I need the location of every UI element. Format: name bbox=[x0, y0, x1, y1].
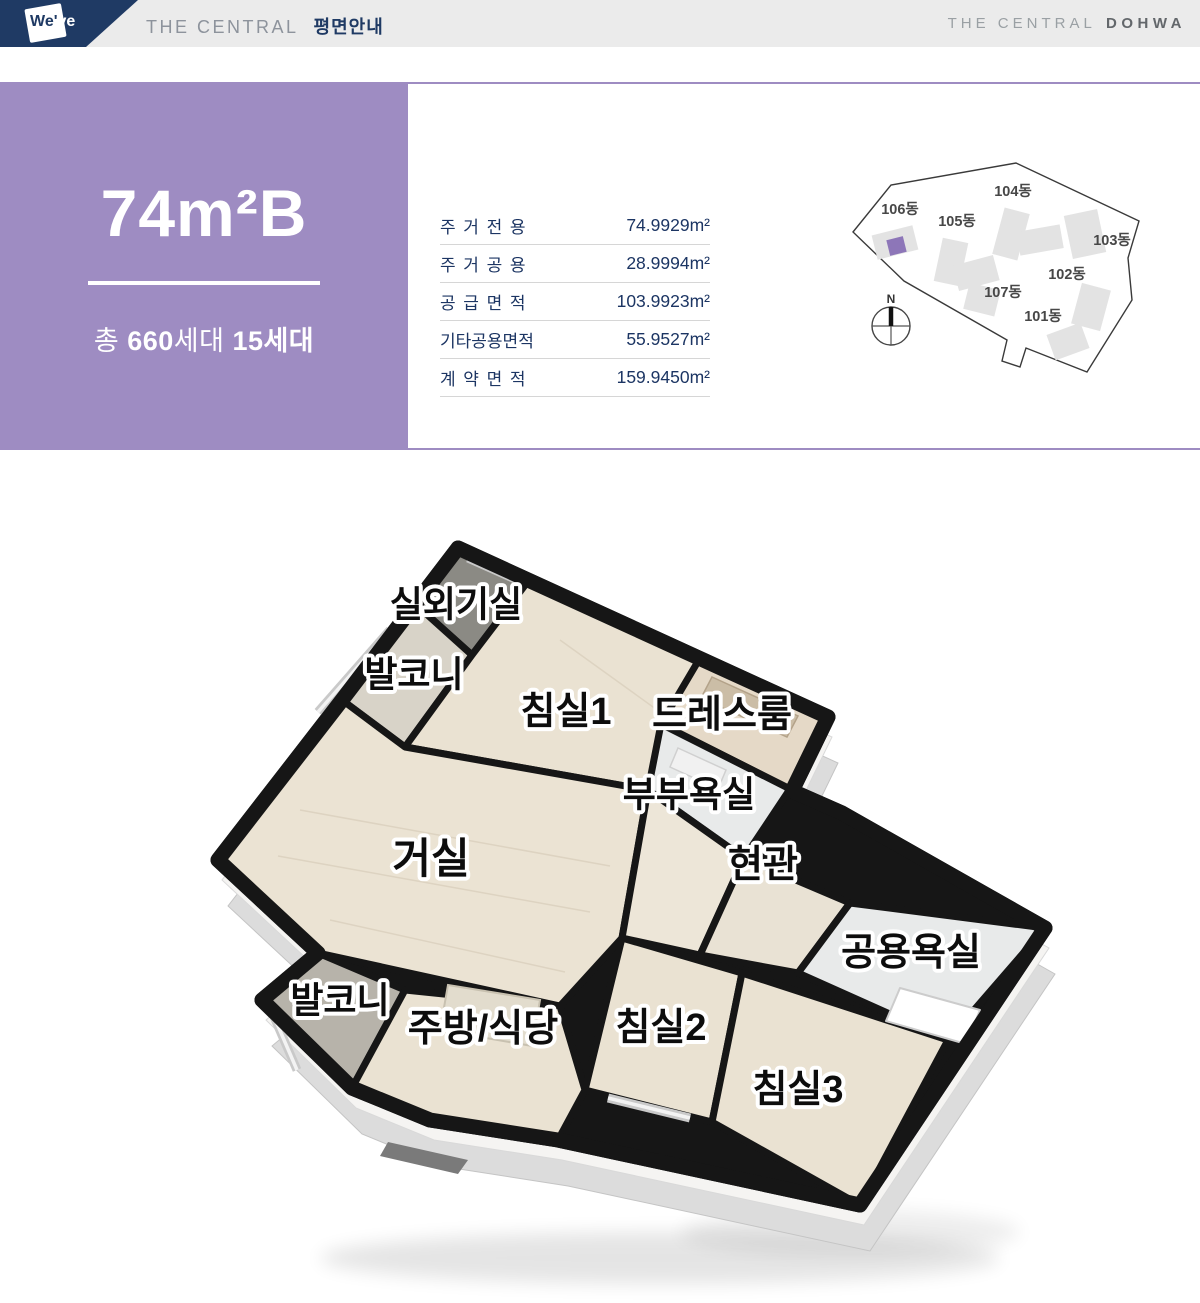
header-brand-en: THE CENTRAL bbox=[948, 15, 1096, 32]
area-value: 55.9527m² bbox=[626, 329, 710, 350]
building-label: 105동 bbox=[938, 213, 976, 230]
building-label: 101동 bbox=[1024, 308, 1062, 325]
area-value: 74.9929m² bbox=[626, 215, 710, 236]
area-label: 계약면적 bbox=[440, 365, 533, 390]
area-table-row: 공급면적103.9923m² bbox=[440, 283, 710, 321]
logo-text-dark: We' bbox=[30, 13, 58, 30]
area-table-row: 주거공용28.9994m² bbox=[440, 245, 710, 283]
area-label: 기타공용면적 bbox=[440, 327, 534, 352]
room-label: 현관 bbox=[728, 844, 798, 886]
unit-count: 총 660세대 15세대 bbox=[94, 319, 314, 358]
area-table-row: 주거전용74.9929m² bbox=[440, 207, 710, 245]
unit-count-prefix: 총 bbox=[94, 326, 127, 356]
weve-logo-text: We've bbox=[30, 13, 75, 31]
area-value: 103.9923m² bbox=[617, 291, 710, 312]
site-map: 101동102동103동104동105동106동107동 N bbox=[850, 150, 1152, 390]
area-table: 주거전용74.9929m²주거공용28.9994m²공급면적103.9923m²… bbox=[440, 207, 710, 397]
room-label: 거실 bbox=[392, 835, 469, 882]
site-map-svg: 101동102동103동104동105동106동107동 N bbox=[850, 150, 1152, 390]
area-value: 159.9450m² bbox=[617, 367, 710, 388]
header-title-ko: 평면안내 bbox=[314, 17, 384, 37]
weve-logo: We've bbox=[0, 0, 138, 47]
page: We've THE CENTRAL 평면안내 THE CENTRAL DOHWA… bbox=[0, 0, 1200, 1303]
unit-count-total: 660 bbox=[127, 326, 174, 356]
unit-count-suffix: 세대 bbox=[174, 326, 233, 356]
area-label: 주거공용 bbox=[440, 251, 533, 276]
top-header: We've THE CENTRAL 평면안내 THE CENTRAL DOHWA bbox=[0, 0, 1200, 47]
floor-plan-svg: 실외기실발코니침실1드레스룸부부욕실거실현관공용욕실발코니주방/식당침실2침실3 bbox=[0, 450, 1200, 1303]
unit-type-name: 74m²B bbox=[101, 175, 308, 251]
compass-n-label: N bbox=[887, 292, 896, 306]
header-title: THE CENTRAL 평면안내 bbox=[146, 13, 384, 39]
room-label: 드레스룸 bbox=[652, 694, 792, 736]
building-label: 102동 bbox=[1048, 266, 1086, 283]
area-label: 공급면적 bbox=[440, 289, 533, 314]
unit-count-type: 15세대 bbox=[232, 326, 314, 356]
room-label: 침실1 bbox=[520, 691, 611, 733]
floor-plan: 실외기실발코니침실1드레스룸부부욕실거실현관공용욕실발코니주방/식당침실2침실3 bbox=[0, 450, 1200, 1303]
building-label: 104동 bbox=[994, 183, 1032, 200]
header-brand: THE CENTRAL DOHWA bbox=[948, 15, 1186, 32]
area-value: 28.9994m² bbox=[626, 253, 710, 274]
compass-icon: N bbox=[872, 292, 910, 345]
room-label: 공용욕실 bbox=[841, 932, 981, 974]
room-label: 실외기실 bbox=[390, 584, 522, 625]
divider bbox=[88, 281, 320, 285]
header-brand-bold: DOHWA bbox=[1106, 15, 1186, 32]
unit-type-panel: 74m²B 총 660세대 15세대 bbox=[0, 84, 408, 448]
room-label: 발코니 bbox=[364, 654, 463, 695]
room-label: 발코니 bbox=[290, 980, 389, 1021]
unit-info-strip: 74m²B 총 660세대 15세대 주거전용74.9929m²주거공용28.9… bbox=[0, 82, 1200, 450]
building-label: 106동 bbox=[881, 201, 919, 218]
room-label: 부부욕실 bbox=[623, 774, 755, 815]
room-label: 주방/식당 bbox=[408, 1008, 558, 1050]
header-title-en: THE CENTRAL bbox=[146, 17, 299, 37]
room-label: 침실3 bbox=[752, 1069, 843, 1111]
logo-text-light: ve bbox=[58, 13, 76, 30]
room-label: 침실2 bbox=[615, 1007, 706, 1049]
building-label: 107동 bbox=[984, 284, 1022, 301]
building-label: 103동 bbox=[1093, 232, 1131, 249]
area-table-row: 기타공용면적55.9527m² bbox=[440, 321, 710, 359]
area-label: 주거전용 bbox=[440, 213, 533, 238]
area-table-row: 계약면적159.9450m² bbox=[440, 359, 710, 397]
